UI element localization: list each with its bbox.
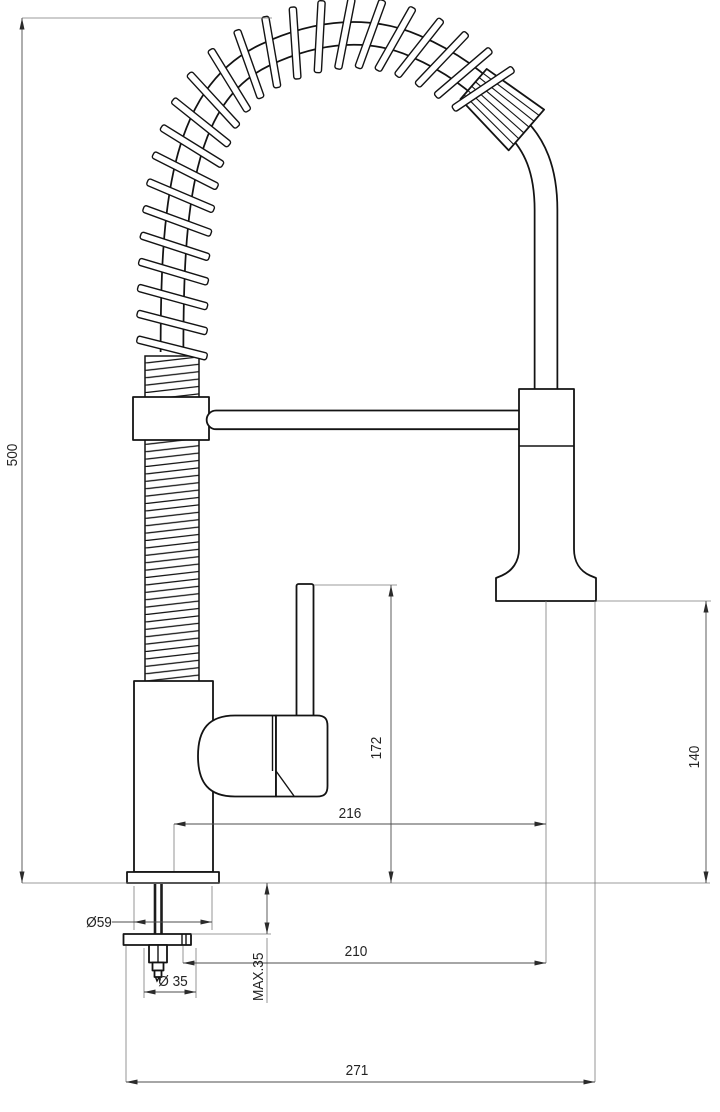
label-reach-lower: 210 bbox=[345, 943, 368, 959]
label-outlet-height: 140 bbox=[686, 745, 702, 768]
faucet-dimension-drawing: 500 172 140 216 210 271 Ø59 Ø 35 MAX.35 bbox=[0, 0, 720, 1112]
handle-base bbox=[276, 716, 328, 797]
handle-boss bbox=[198, 716, 276, 797]
handle-lever bbox=[297, 584, 314, 717]
label-overall-reach: 271 bbox=[346, 1062, 369, 1078]
handle bbox=[198, 584, 328, 797]
mounting-crossbar bbox=[207, 411, 521, 430]
label-hole-diameter: Ø 35 bbox=[158, 973, 188, 989]
technical-drawing-page: 500 172 140 216 210 271 Ø59 Ø 35 MAX.35 bbox=[0, 0, 720, 1112]
label-base-diameter: Ø59 bbox=[86, 914, 112, 930]
label-overall-height: 500 bbox=[4, 443, 20, 466]
outlet-tube bbox=[511, 122, 546, 392]
base-flange bbox=[127, 872, 219, 883]
dimension-layer: 500 172 140 216 210 271 Ø59 Ø 35 MAX.35 bbox=[4, 18, 711, 1082]
label-handle-height: 172 bbox=[368, 736, 384, 759]
spring-clamp-block bbox=[133, 397, 209, 440]
mounting-washer bbox=[124, 934, 192, 945]
label-reach-upper: 216 bbox=[339, 805, 362, 821]
label-max-thickness: MAX.35 bbox=[250, 952, 266, 1001]
